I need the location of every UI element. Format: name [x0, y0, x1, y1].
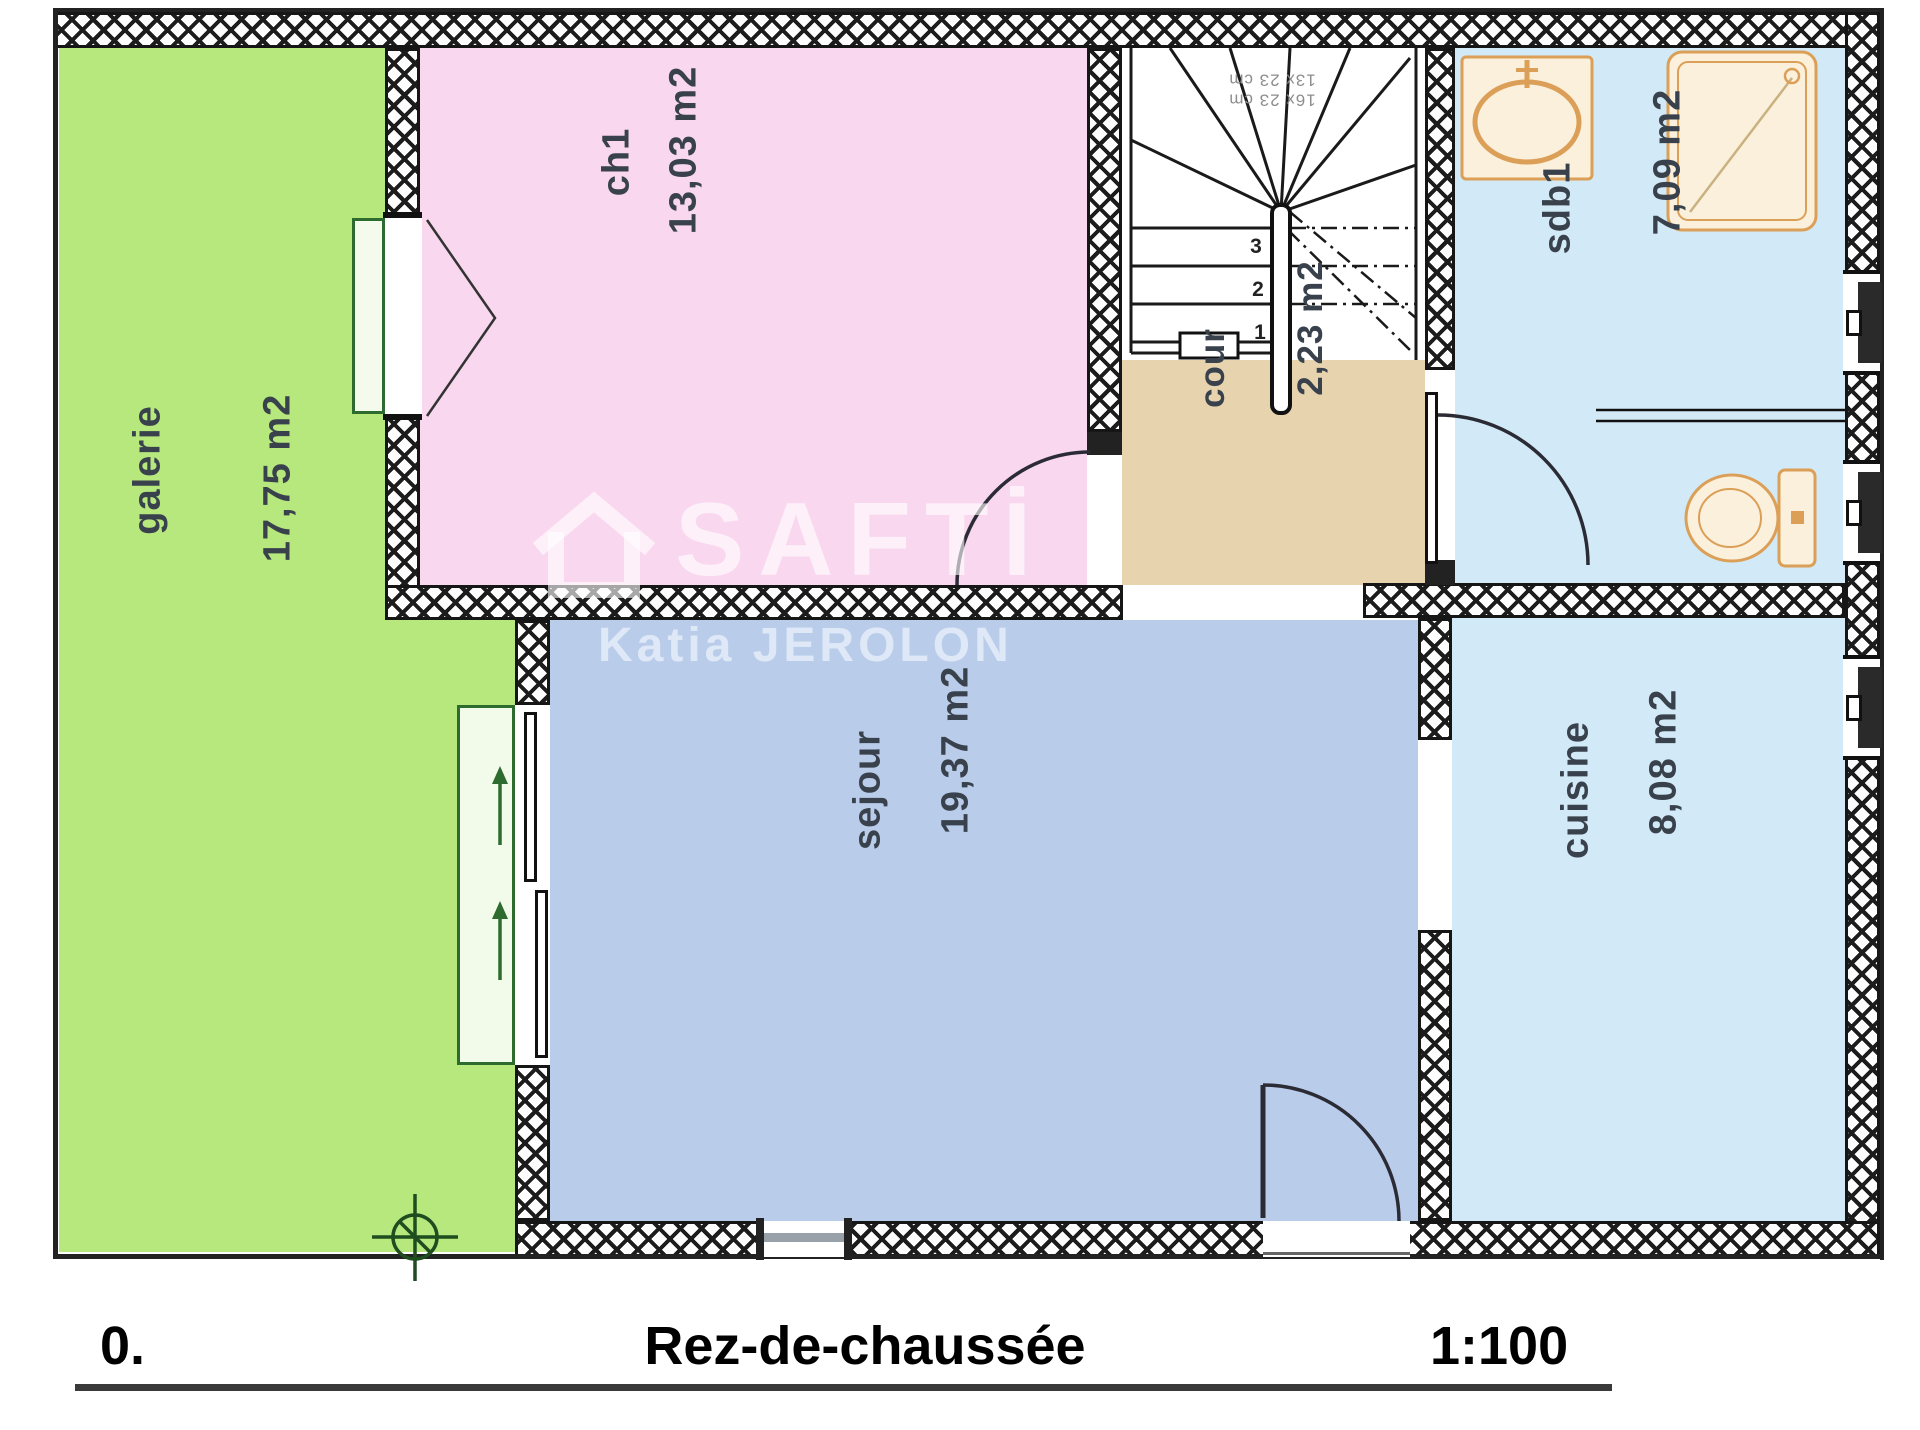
label-sdb1: sdb1: [1537, 162, 1580, 255]
partition-line: [1596, 410, 1845, 421]
door-arc-bottom: [1263, 1085, 1399, 1221]
floor-plan: SAFTİ Katia JEROLON galerie 17,75 m2 ch1…: [0, 0, 1920, 1430]
footer-level: 0.: [100, 1315, 145, 1377]
label-sejour: sejour: [847, 730, 890, 850]
label-sejour-area: 19,37 m2: [935, 666, 978, 835]
footer-scale: 1:100: [1430, 1315, 1568, 1377]
label-cuisine: cuisine: [1555, 721, 1598, 859]
label-galerie-area: 17,75 m2: [257, 394, 300, 563]
toilet-icon: [1686, 470, 1815, 566]
stair-step-1: 1: [1254, 321, 1266, 345]
stair-rail: [1272, 205, 1290, 413]
label-cuisine-area: 8,08 m2: [1643, 689, 1686, 835]
entrance-arrows: [492, 766, 508, 980]
door-arc-ch1: [957, 452, 1090, 585]
shower-icon: [1668, 52, 1816, 230]
stair-step-2: 2: [1252, 278, 1264, 302]
benchmark-icon: [372, 1194, 458, 1281]
label-galerie: galerie: [127, 405, 170, 535]
label-ch1: ch1: [596, 128, 639, 196]
label-cour: cour: [1193, 328, 1233, 408]
door-arc-sdb1: [1438, 415, 1588, 565]
stair-step-3: 3: [1250, 235, 1262, 259]
label-cour-area: 2,23 m2: [1291, 260, 1331, 395]
window-casement-lines: [427, 220, 495, 416]
label-sdb1-area: 7,09 m2: [1647, 89, 1690, 235]
stair-annotation: 16x 23 cm 13x 23 cm: [1228, 70, 1315, 109]
label-ch1-area: 13,03 m2: [663, 66, 706, 235]
footer-title: Rez-de-chaussée: [644, 1315, 1085, 1377]
footer-line: [75, 1384, 1612, 1391]
